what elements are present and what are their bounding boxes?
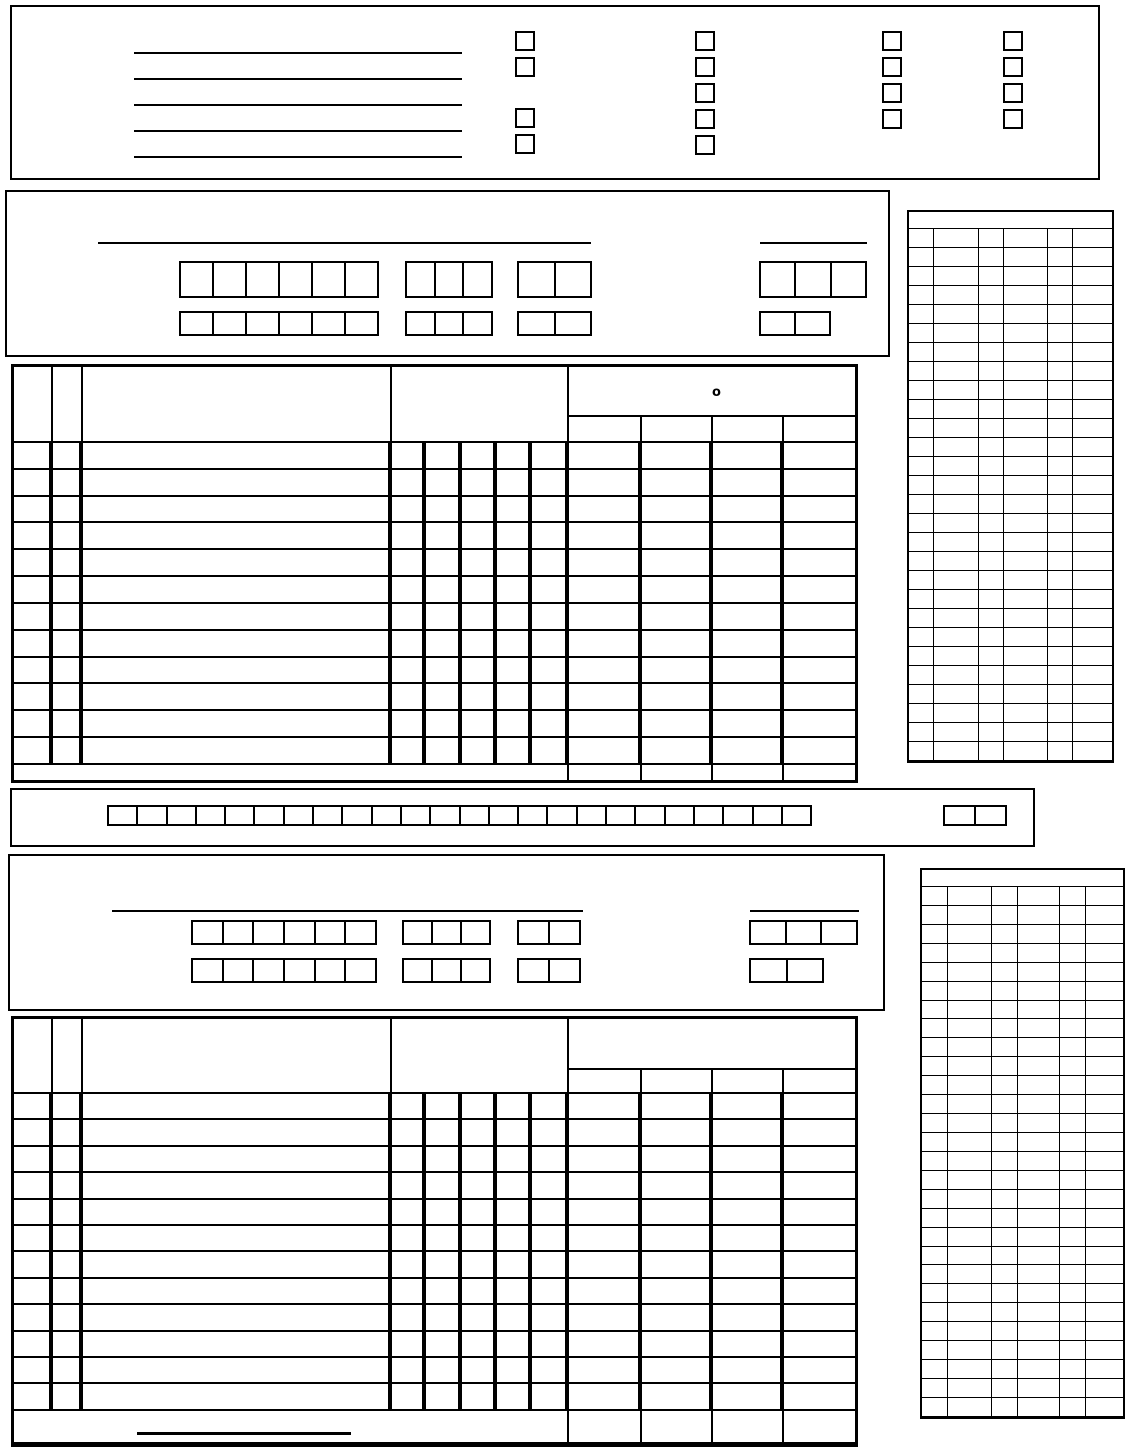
score-cell[interactable] xyxy=(1004,647,1048,665)
score-cell[interactable] xyxy=(1018,1001,1060,1019)
tally-box[interactable] xyxy=(605,807,634,824)
score-cell[interactable] xyxy=(1004,324,1048,342)
score-cell[interactable] xyxy=(1018,1265,1060,1283)
score-cell[interactable] xyxy=(909,533,934,551)
digit-box[interactable] xyxy=(548,960,579,981)
roster-cell-stat[interactable] xyxy=(782,711,858,736)
roster-cell-mark[interactable] xyxy=(530,470,567,495)
score-cell[interactable] xyxy=(1073,267,1112,285)
roster-cell-mark[interactable] xyxy=(390,523,424,548)
roster-cell-mark[interactable] xyxy=(424,738,460,763)
score-cell[interactable] xyxy=(1060,925,1086,943)
roster-cell-name[interactable] xyxy=(81,443,390,468)
tally-box[interactable] xyxy=(634,807,663,824)
tally-box[interactable] xyxy=(664,807,693,824)
roster-cell-name[interactable] xyxy=(81,738,390,763)
roster-cell-mark[interactable] xyxy=(495,604,530,629)
roster-cell-mark[interactable] xyxy=(530,523,567,548)
score-cell[interactable] xyxy=(1004,723,1048,741)
roster-cell-mark[interactable] xyxy=(390,711,424,736)
roster-cell-stat[interactable] xyxy=(711,1147,782,1171)
roster-cell-mark[interactable] xyxy=(460,1358,495,1382)
roster-cell-stat[interactable] xyxy=(711,1332,782,1356)
roster-cell-stat[interactable] xyxy=(640,711,711,736)
score-cell[interactable] xyxy=(1086,963,1123,981)
checkbox[interactable] xyxy=(695,135,715,155)
roster-cell-mark[interactable] xyxy=(390,658,424,683)
score-cell[interactable] xyxy=(1086,1379,1123,1397)
score-cell[interactable] xyxy=(922,925,948,943)
roster-cell-flag[interactable] xyxy=(51,1226,81,1250)
score-cell[interactable] xyxy=(1073,590,1112,608)
digit-box[interactable] xyxy=(462,263,491,296)
score-cell[interactable] xyxy=(992,1360,1018,1378)
digit-box[interactable] xyxy=(212,263,245,296)
score-cell[interactable] xyxy=(1086,1303,1123,1321)
score-cell[interactable] xyxy=(1060,1284,1086,1302)
roster-cell-mark[interactable] xyxy=(460,1200,495,1224)
score-cell[interactable] xyxy=(909,248,934,266)
score-cell[interactable] xyxy=(1060,1379,1086,1397)
roster-cell-mark[interactable] xyxy=(460,604,495,629)
tally-box[interactable] xyxy=(312,807,341,824)
roster-cell-mark[interactable] xyxy=(495,1332,530,1356)
score-cell[interactable] xyxy=(1048,343,1073,361)
score-cell[interactable] xyxy=(922,1398,948,1416)
score-cell[interactable] xyxy=(1060,1209,1086,1227)
score-cell[interactable] xyxy=(1048,324,1073,342)
score-cell[interactable] xyxy=(934,476,979,494)
score-cell[interactable] xyxy=(1086,982,1123,1000)
checkbox[interactable] xyxy=(882,83,902,103)
team-a-name-line[interactable] xyxy=(98,242,591,244)
score-cell[interactable] xyxy=(992,1228,1018,1246)
score-cell[interactable] xyxy=(992,1133,1018,1151)
roster-cell-flag[interactable] xyxy=(51,631,81,656)
roster-cell-stat[interactable] xyxy=(567,1332,640,1356)
score-cell[interactable] xyxy=(1004,609,1048,627)
roster-cell-flag[interactable] xyxy=(51,443,81,468)
roster-cell-number[interactable] xyxy=(11,1332,51,1356)
roster-cell-stat[interactable] xyxy=(782,1094,858,1118)
roster-cell-mark[interactable] xyxy=(390,1226,424,1250)
score-cell[interactable] xyxy=(922,1322,948,1340)
score-cell[interactable] xyxy=(922,1001,948,1019)
score-cell[interactable] xyxy=(934,343,979,361)
digit-box[interactable] xyxy=(460,960,489,981)
roster-cell-name[interactable] xyxy=(81,684,390,709)
roster-cell-mark[interactable] xyxy=(390,497,424,522)
score-cell[interactable] xyxy=(1060,1171,1086,1189)
roster-cell-mark[interactable] xyxy=(460,658,495,683)
score-cell[interactable] xyxy=(934,438,979,456)
roster-cell-stat[interactable] xyxy=(711,658,782,683)
roster-cell-mark[interactable] xyxy=(424,658,460,683)
roster-cell-number[interactable] xyxy=(11,497,51,522)
score-cell[interactable] xyxy=(979,685,1004,703)
score-cell[interactable] xyxy=(1048,514,1073,532)
score-cell[interactable] xyxy=(934,324,979,342)
score-cell[interactable] xyxy=(948,1398,992,1416)
score-cell[interactable] xyxy=(1073,514,1112,532)
score-cell[interactable] xyxy=(1048,267,1073,285)
score-cell[interactable] xyxy=(934,286,979,304)
roster-cell-mark[interactable] xyxy=(390,1279,424,1303)
roster-cell-stat[interactable] xyxy=(567,1173,640,1197)
score-cell[interactable] xyxy=(979,495,1004,513)
score-cell[interactable] xyxy=(909,647,934,665)
roster-cell-mark[interactable] xyxy=(390,1332,424,1356)
score-cell[interactable] xyxy=(1060,1265,1086,1283)
score-cell[interactable] xyxy=(922,1265,948,1283)
roster-cell-stat[interactable] xyxy=(782,1252,858,1276)
digit-box[interactable] xyxy=(311,313,344,334)
score-cell[interactable] xyxy=(1018,1057,1060,1075)
score-cell[interactable] xyxy=(1018,1171,1060,1189)
roster-cell-mark[interactable] xyxy=(530,738,567,763)
score-cell[interactable] xyxy=(1073,248,1112,266)
score-cell[interactable] xyxy=(948,1076,992,1094)
checkbox[interactable] xyxy=(515,57,535,77)
roster-cell-stat[interactable] xyxy=(782,1384,858,1408)
score-cell[interactable] xyxy=(1004,666,1048,684)
roster-cell-mark[interactable] xyxy=(424,443,460,468)
score-cell[interactable] xyxy=(1060,1114,1086,1132)
score-cell[interactable] xyxy=(1048,362,1073,380)
score-cell[interactable] xyxy=(1073,742,1112,760)
roster-cell-mark[interactable] xyxy=(390,604,424,629)
tally-box[interactable] xyxy=(576,807,605,824)
digit-box[interactable] xyxy=(434,313,463,334)
roster-cell-mark[interactable] xyxy=(460,738,495,763)
score-cell[interactable] xyxy=(909,457,934,475)
roster-cell-mark[interactable] xyxy=(390,738,424,763)
roster-cell-stat[interactable] xyxy=(782,1226,858,1250)
score-cell[interactable] xyxy=(1018,1209,1060,1227)
score-cell[interactable] xyxy=(1073,533,1112,551)
roster-cell-stat[interactable] xyxy=(711,711,782,736)
score-cell[interactable] xyxy=(1073,571,1112,589)
score-cell[interactable] xyxy=(992,1114,1018,1132)
score-cell[interactable] xyxy=(909,419,934,437)
score-cell[interactable] xyxy=(1018,1398,1060,1416)
score-cell[interactable] xyxy=(992,1095,1018,1113)
roster-cell-mark[interactable] xyxy=(530,1384,567,1408)
roster-cell-stat[interactable] xyxy=(782,1279,858,1303)
roster-cell-mark[interactable] xyxy=(460,1147,495,1171)
roster-cell-stat[interactable] xyxy=(640,658,711,683)
tally-box[interactable] xyxy=(283,807,312,824)
score-cell[interactable] xyxy=(1048,704,1073,722)
roster-cell-mark[interactable] xyxy=(530,1226,567,1250)
score-cell[interactable] xyxy=(922,1228,948,1246)
score-cell[interactable] xyxy=(992,1379,1018,1397)
digit-box[interactable] xyxy=(554,263,591,296)
score-cell[interactable] xyxy=(934,267,979,285)
score-cell[interactable] xyxy=(1060,1057,1086,1075)
score-cell[interactable] xyxy=(1073,628,1112,646)
roster-cell-mark[interactable] xyxy=(495,1226,530,1250)
score-cell[interactable] xyxy=(948,906,992,924)
roster-cell-mark[interactable] xyxy=(530,443,567,468)
score-cell[interactable] xyxy=(909,666,934,684)
score-cell[interactable] xyxy=(1048,476,1073,494)
roster-cell-mark[interactable] xyxy=(530,1173,567,1197)
roster-cell-name[interactable] xyxy=(81,497,390,522)
tally-box[interactable] xyxy=(109,807,136,824)
digit-box[interactable] xyxy=(283,922,314,943)
score-cell[interactable] xyxy=(979,476,1004,494)
roster-cell-stat[interactable] xyxy=(567,738,640,763)
roster-cell-stat[interactable] xyxy=(782,470,858,495)
roster-cell-stat[interactable] xyxy=(711,577,782,602)
score-cell[interactable] xyxy=(922,1360,948,1378)
digit-box[interactable] xyxy=(407,313,434,334)
score-cell[interactable] xyxy=(992,1322,1018,1340)
score-cell[interactable] xyxy=(909,552,934,570)
roster-cell-stat[interactable] xyxy=(640,1226,711,1250)
roster-cell-stat[interactable] xyxy=(567,1279,640,1303)
score-cell[interactable] xyxy=(1018,1303,1060,1321)
score-cell[interactable] xyxy=(1004,628,1048,646)
roster-cell-name[interactable] xyxy=(81,711,390,736)
score-cell[interactable] xyxy=(992,1284,1018,1302)
score-cell[interactable] xyxy=(1073,229,1112,247)
roster-cell-stat[interactable] xyxy=(640,1305,711,1329)
roster-cell-stat[interactable] xyxy=(640,1094,711,1118)
score-cell[interactable] xyxy=(948,1190,992,1208)
roster-cell-mark[interactable] xyxy=(424,711,460,736)
roster-cell-flag[interactable] xyxy=(51,1147,81,1171)
score-cell[interactable] xyxy=(948,982,992,1000)
score-cell[interactable] xyxy=(992,1057,1018,1075)
digit-box[interactable] xyxy=(222,960,253,981)
roster-cell-mark[interactable] xyxy=(390,1094,424,1118)
checkbox[interactable] xyxy=(695,57,715,77)
roster-cell-mark[interactable] xyxy=(424,631,460,656)
roster-cell-mark[interactable] xyxy=(530,1147,567,1171)
roster-cell-mark[interactable] xyxy=(390,631,424,656)
score-cell[interactable] xyxy=(1018,887,1060,905)
roster-cell-mark[interactable] xyxy=(390,1120,424,1144)
roster-cell-stat[interactable] xyxy=(640,470,711,495)
score-cell[interactable] xyxy=(909,609,934,627)
score-cell[interactable] xyxy=(1086,1284,1123,1302)
roster-cell-mark[interactable] xyxy=(424,604,460,629)
digit-box[interactable] xyxy=(252,960,283,981)
roster-cell-number[interactable] xyxy=(11,1358,51,1382)
tally-box[interactable] xyxy=(974,807,1005,824)
roster-cell-mark[interactable] xyxy=(495,1358,530,1382)
score-cell[interactable] xyxy=(1048,685,1073,703)
digit-box[interactable] xyxy=(460,922,489,943)
score-cell[interactable] xyxy=(1018,963,1060,981)
roster-cell-stat[interactable] xyxy=(711,550,782,575)
roster-cell-mark[interactable] xyxy=(495,684,530,709)
team-b-short-line[interactable] xyxy=(750,910,859,912)
roster-cell-stat[interactable] xyxy=(711,1120,782,1144)
score-cell[interactable] xyxy=(1060,1303,1086,1321)
score-cell[interactable] xyxy=(992,925,1018,943)
roster-cell-mark[interactable] xyxy=(495,1173,530,1197)
score-cell[interactable] xyxy=(1048,666,1073,684)
roster-cell-stat[interactable] xyxy=(782,604,858,629)
roster-cell-stat[interactable] xyxy=(782,1120,858,1144)
score-cell[interactable] xyxy=(909,742,934,760)
roster-cell-number[interactable] xyxy=(11,1279,51,1303)
roster-cell-stat[interactable] xyxy=(782,1147,858,1171)
roster-cell-flag[interactable] xyxy=(51,523,81,548)
digit-box[interactable] xyxy=(794,263,829,296)
roster-cell-mark[interactable] xyxy=(530,711,567,736)
digit-box[interactable] xyxy=(314,922,345,943)
roster-cell-mark[interactable] xyxy=(424,1279,460,1303)
score-cell[interactable] xyxy=(1018,1341,1060,1359)
score-cell[interactable] xyxy=(909,381,934,399)
tally-box[interactable] xyxy=(341,807,370,824)
digit-box[interactable] xyxy=(278,313,311,334)
roster-cell-mark[interactable] xyxy=(530,1094,567,1118)
score-cell[interactable] xyxy=(934,723,979,741)
score-cell[interactable] xyxy=(909,514,934,532)
roster-cell-flag[interactable] xyxy=(51,470,81,495)
roster-cell-stat[interactable] xyxy=(567,658,640,683)
roster-cell-mark[interactable] xyxy=(495,631,530,656)
score-cell[interactable] xyxy=(1060,1190,1086,1208)
roster-cell-stat[interactable] xyxy=(567,1358,640,1382)
score-cell[interactable] xyxy=(1048,609,1073,627)
score-cell[interactable] xyxy=(1048,495,1073,513)
roster-cell-mark[interactable] xyxy=(390,443,424,468)
roster-cell-mark[interactable] xyxy=(424,1332,460,1356)
digit-box[interactable] xyxy=(786,960,823,981)
score-cell[interactable] xyxy=(1060,944,1086,962)
score-cell[interactable] xyxy=(1060,1076,1086,1094)
roster-cell-flag[interactable] xyxy=(51,1094,81,1118)
roster-cell-mark[interactable] xyxy=(390,1384,424,1408)
score-cell[interactable] xyxy=(909,305,934,323)
score-cell[interactable] xyxy=(1060,1360,1086,1378)
digit-box[interactable] xyxy=(283,960,314,981)
roster-cell-stat[interactable] xyxy=(567,604,640,629)
roster-cell-name[interactable] xyxy=(81,1252,390,1276)
score-cell[interactable] xyxy=(909,229,934,247)
digit-box[interactable] xyxy=(404,960,431,981)
roster-cell-stat[interactable] xyxy=(567,1252,640,1276)
roster-cell-mark[interactable] xyxy=(424,1094,460,1118)
score-cell[interactable] xyxy=(1004,419,1048,437)
roster-cell-mark[interactable] xyxy=(495,523,530,548)
score-cell[interactable] xyxy=(992,1209,1018,1227)
score-cell[interactable] xyxy=(1018,1152,1060,1170)
score-cell[interactable] xyxy=(922,906,948,924)
score-cell[interactable] xyxy=(934,362,979,380)
roster-cell-number[interactable] xyxy=(11,1384,51,1408)
score-cell[interactable] xyxy=(934,666,979,684)
score-cell[interactable] xyxy=(922,1038,948,1056)
score-cell[interactable] xyxy=(1004,495,1048,513)
roster-cell-mark[interactable] xyxy=(495,738,530,763)
score-cell[interactable] xyxy=(934,305,979,323)
score-cell[interactable] xyxy=(1004,742,1048,760)
score-cell[interactable] xyxy=(1086,1114,1123,1132)
score-cell[interactable] xyxy=(1060,1247,1086,1265)
score-cell[interactable] xyxy=(979,533,1004,551)
team-b-name-line[interactable] xyxy=(112,910,583,912)
digit-box[interactable] xyxy=(344,263,377,296)
score-cell[interactable] xyxy=(979,514,1004,532)
score-cell[interactable] xyxy=(1060,1228,1086,1246)
roster-cell-mark[interactable] xyxy=(390,1305,424,1329)
roster-cell-number[interactable] xyxy=(11,577,51,602)
score-cell[interactable] xyxy=(979,457,1004,475)
score-cell[interactable] xyxy=(1004,229,1048,247)
score-cell[interactable] xyxy=(1004,400,1048,418)
score-cell[interactable] xyxy=(1073,419,1112,437)
score-cell[interactable] xyxy=(948,1001,992,1019)
roster-cell-stat[interactable] xyxy=(567,1120,640,1144)
score-cell[interactable] xyxy=(1060,1133,1086,1151)
roster-cell-stat[interactable] xyxy=(640,550,711,575)
tally-box[interactable] xyxy=(546,807,575,824)
roster-cell-flag[interactable] xyxy=(51,1358,81,1382)
roster-cell-stat[interactable] xyxy=(711,1305,782,1329)
score-cell[interactable] xyxy=(1004,343,1048,361)
score-cell[interactable] xyxy=(979,400,1004,418)
score-cell[interactable] xyxy=(1073,286,1112,304)
checkbox[interactable] xyxy=(1003,109,1023,129)
roster-cell-stat[interactable] xyxy=(640,443,711,468)
roster-cell-flag[interactable] xyxy=(51,1305,81,1329)
roster-cell-mark[interactable] xyxy=(460,523,495,548)
tally-box[interactable] xyxy=(166,807,195,824)
score-cell[interactable] xyxy=(1086,1095,1123,1113)
score-cell[interactable] xyxy=(1086,1398,1123,1416)
checkbox[interactable] xyxy=(695,109,715,129)
score-cell[interactable] xyxy=(979,324,1004,342)
roster-cell-number[interactable] xyxy=(11,631,51,656)
score-cell[interactable] xyxy=(992,1019,1018,1037)
score-cell[interactable] xyxy=(934,742,979,760)
roster-cell-stat[interactable] xyxy=(567,523,640,548)
roster-cell-stat[interactable] xyxy=(782,1305,858,1329)
checkbox[interactable] xyxy=(882,31,902,51)
roster-cell-mark[interactable] xyxy=(495,497,530,522)
score-cell[interactable] xyxy=(1073,305,1112,323)
roster-cell-mark[interactable] xyxy=(390,470,424,495)
roster-cell-mark[interactable] xyxy=(495,658,530,683)
write-line[interactable] xyxy=(134,28,462,54)
score-cell[interactable] xyxy=(1060,1001,1086,1019)
roster-cell-stat[interactable] xyxy=(567,711,640,736)
score-cell[interactable] xyxy=(992,1247,1018,1265)
score-cell[interactable] xyxy=(992,887,1018,905)
score-cell[interactable] xyxy=(934,495,979,513)
score-cell[interactable] xyxy=(922,1247,948,1265)
roster-cell-mark[interactable] xyxy=(495,1147,530,1171)
score-cell[interactable] xyxy=(922,982,948,1000)
roster-cell-name[interactable] xyxy=(81,1332,390,1356)
score-cell[interactable] xyxy=(992,1190,1018,1208)
score-cell[interactable] xyxy=(1073,704,1112,722)
roster-cell-stat[interactable] xyxy=(567,684,640,709)
score-cell[interactable] xyxy=(1086,1360,1123,1378)
score-cell[interactable] xyxy=(909,723,934,741)
score-cell[interactable] xyxy=(934,248,979,266)
score-cell[interactable] xyxy=(922,1171,948,1189)
score-cell[interactable] xyxy=(1018,1379,1060,1397)
roster-cell-mark[interactable] xyxy=(530,684,567,709)
